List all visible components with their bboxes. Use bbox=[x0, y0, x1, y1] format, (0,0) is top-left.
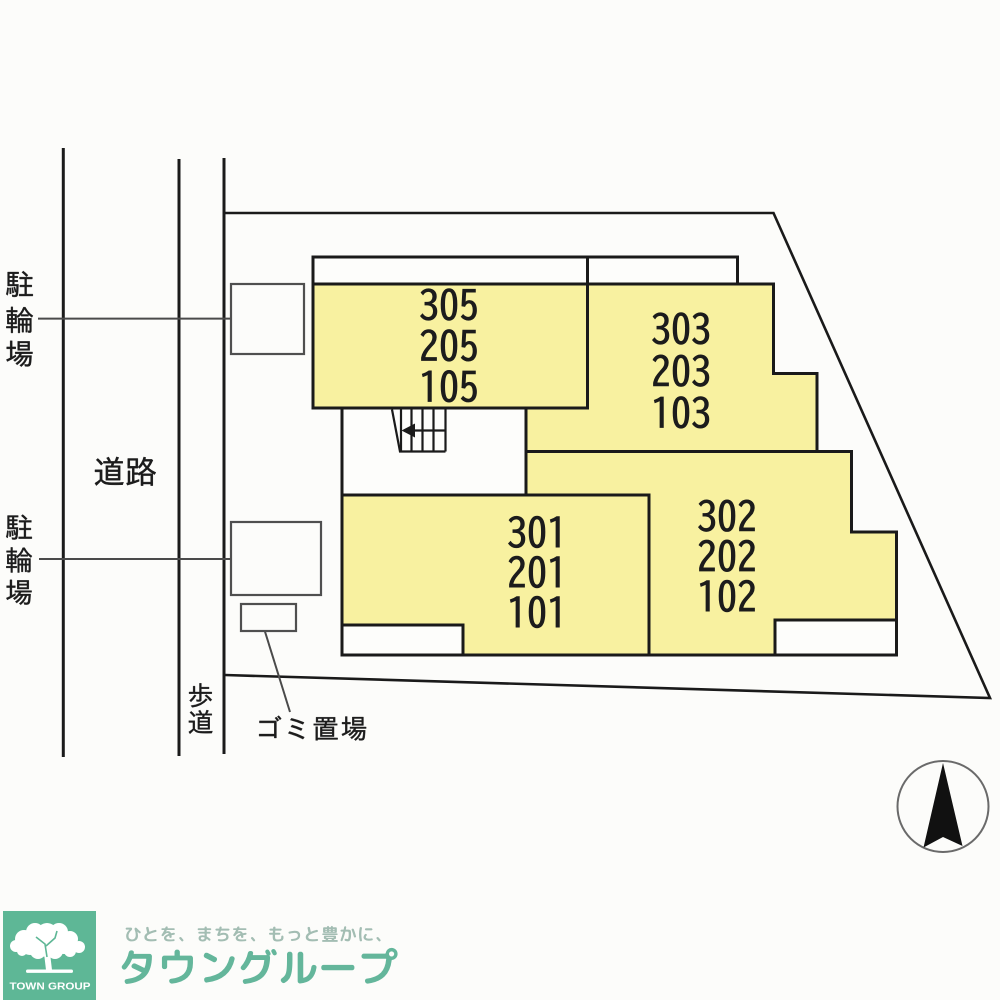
svg-text:TOWN GROUP: TOWN GROUP bbox=[10, 981, 91, 993]
